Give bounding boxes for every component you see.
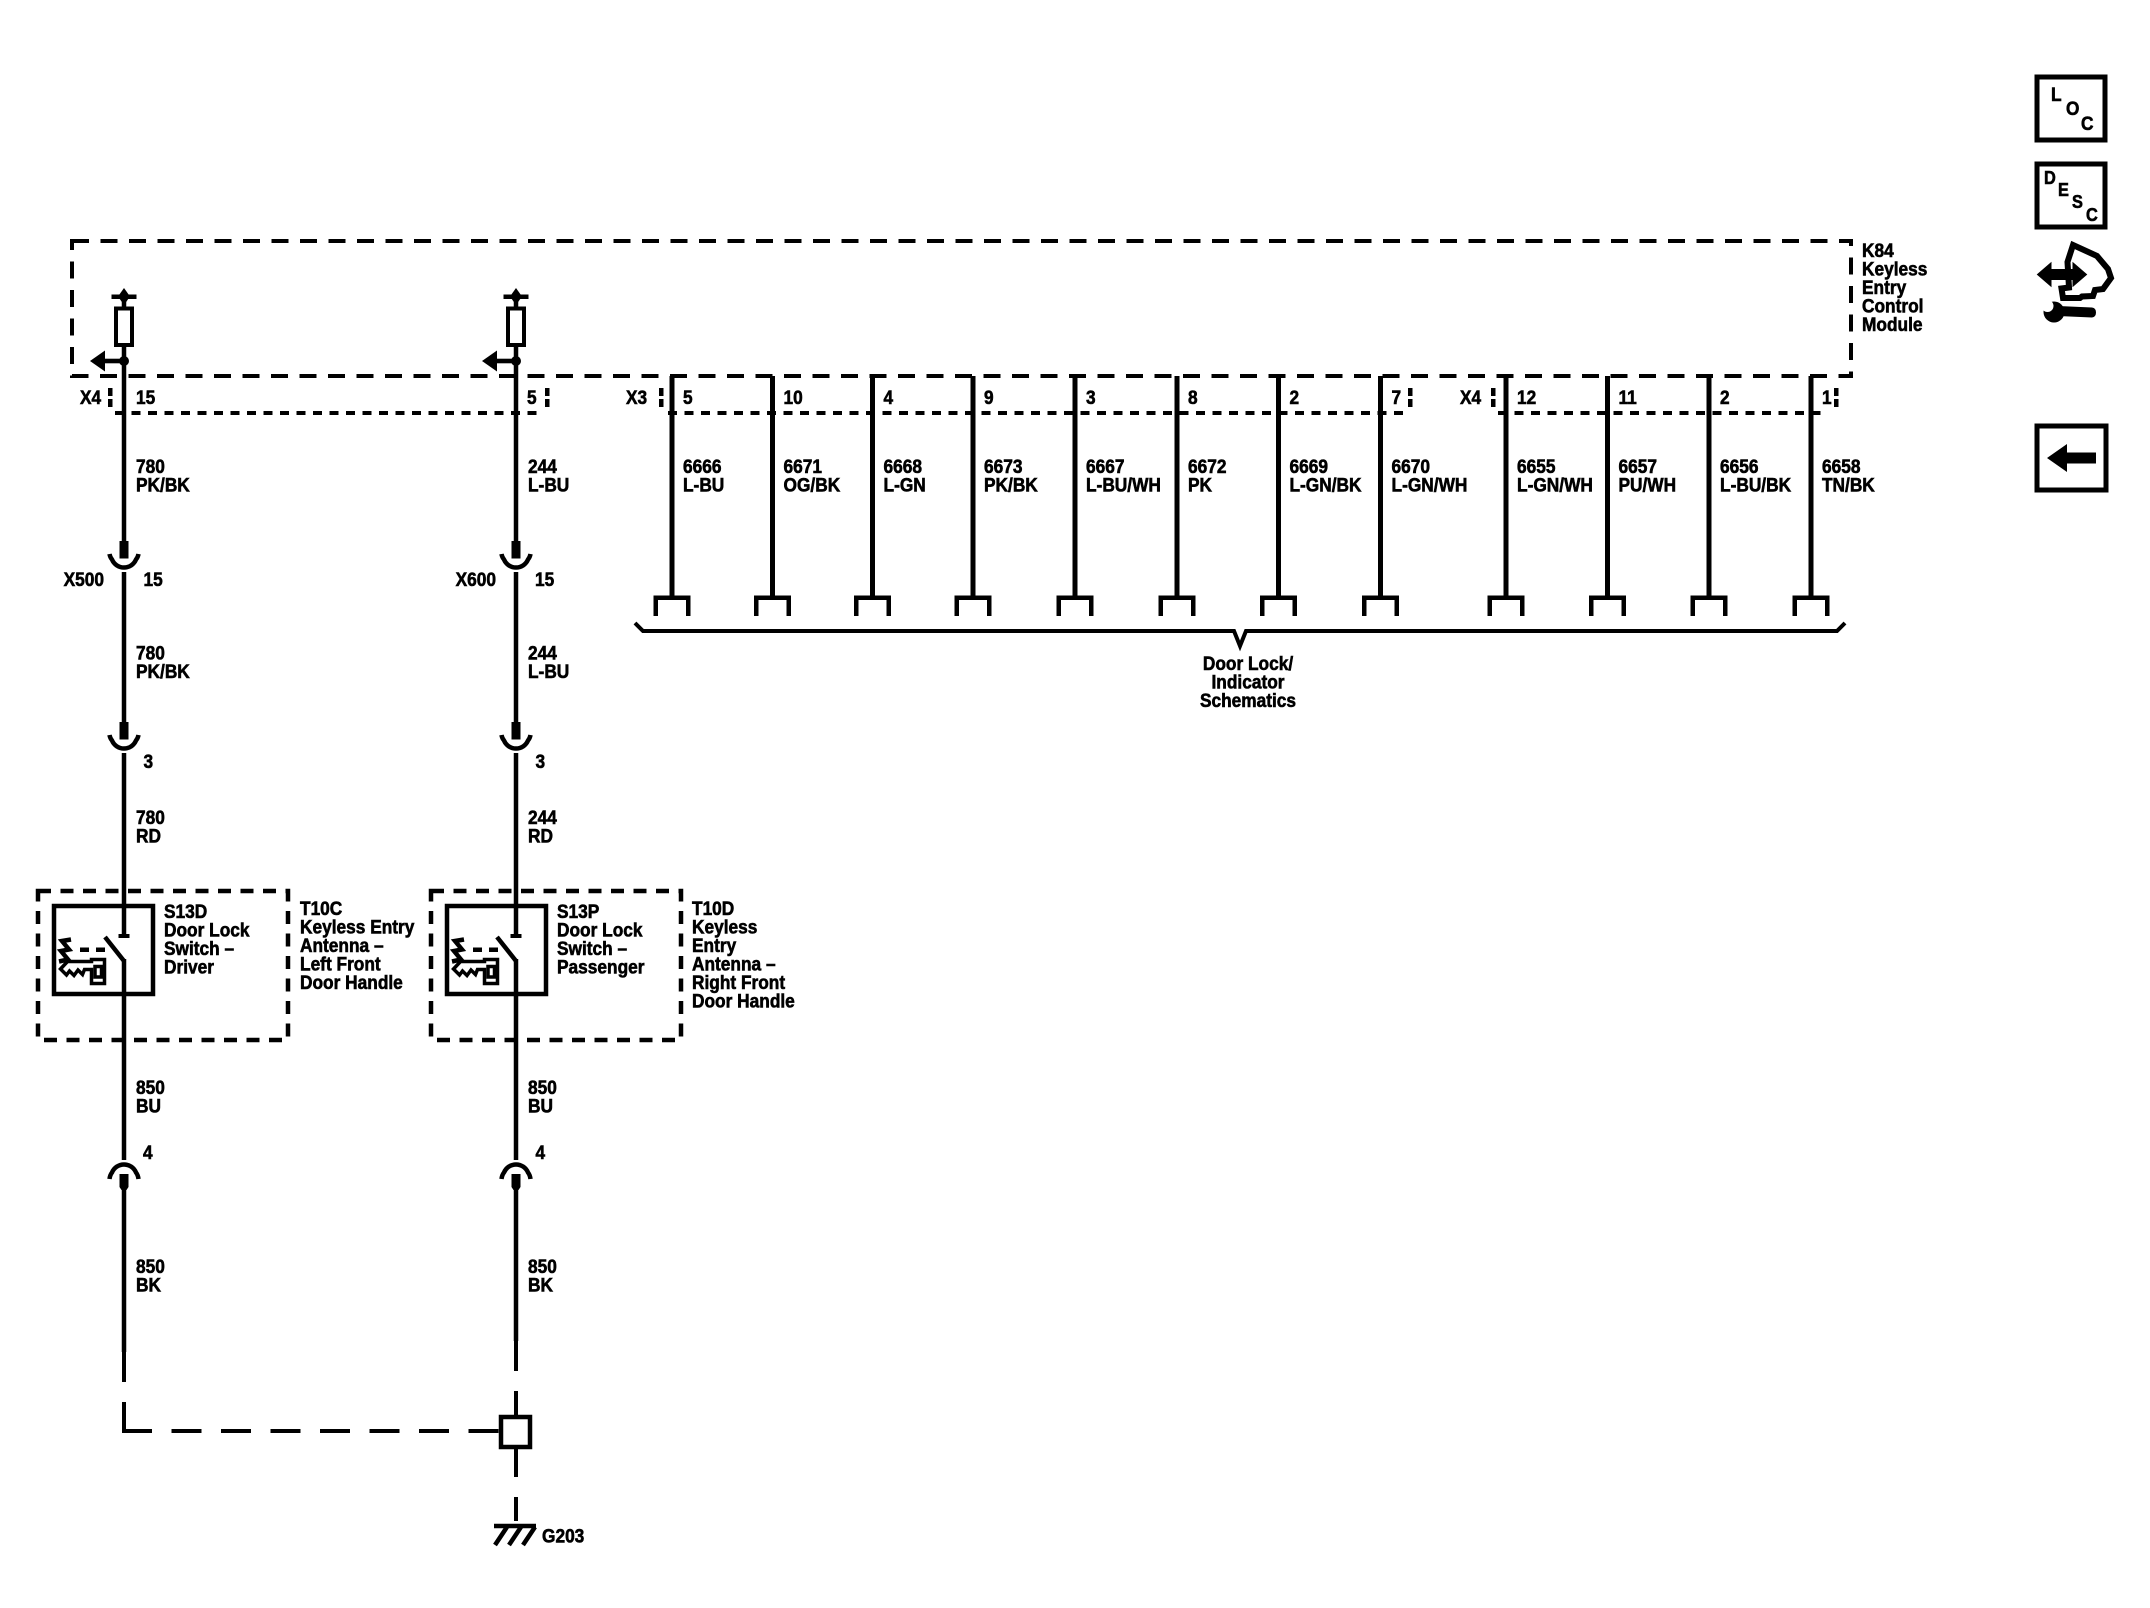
svg-text:L-BU: L-BU	[528, 662, 569, 683]
svg-text:X4: X4	[80, 388, 101, 409]
svg-text:L-BU: L-BU	[528, 476, 569, 497]
svg-text:L-BU: L-BU	[683, 476, 724, 497]
svg-text:G203: G203	[542, 1527, 584, 1548]
svg-text:X600: X600	[456, 570, 496, 591]
svg-text:L-GN/WH: L-GN/WH	[1517, 476, 1593, 497]
svg-text:TN/BK: TN/BK	[1822, 476, 1875, 497]
svg-text:4: 4	[536, 1143, 546, 1164]
svg-text:RD: RD	[528, 827, 553, 848]
svg-text:Passenger: Passenger	[557, 957, 645, 978]
svg-text:PK: PK	[1188, 476, 1212, 497]
svg-text:BU: BU	[136, 1097, 161, 1118]
svg-text:9: 9	[984, 388, 994, 409]
svg-text:X4: X4	[1460, 388, 1481, 409]
svg-text:BU: BU	[528, 1097, 553, 1118]
svg-text:RD: RD	[136, 827, 161, 848]
svg-text:PK/BK: PK/BK	[984, 476, 1038, 497]
svg-text:X3: X3	[626, 388, 647, 409]
svg-text:BK: BK	[528, 1276, 553, 1297]
svg-text:L-GN: L-GN	[884, 476, 926, 497]
svg-text:D: D	[2044, 168, 2056, 188]
svg-text:7: 7	[1392, 388, 1402, 409]
svg-text:15: 15	[144, 570, 164, 591]
svg-text:Door Handle: Door Handle	[692, 991, 795, 1012]
svg-text:5: 5	[683, 388, 693, 409]
svg-text:L-BU/BK: L-BU/BK	[1720, 476, 1791, 497]
svg-text:OG/BK: OG/BK	[784, 476, 841, 497]
svg-text:C: C	[2086, 205, 2098, 225]
svg-text:S: S	[2072, 192, 2083, 212]
svg-text:1: 1	[1822, 388, 1832, 409]
svg-text:2: 2	[1290, 388, 1300, 409]
svg-text:10: 10	[784, 388, 803, 409]
svg-text:4: 4	[884, 388, 894, 409]
svg-text:2: 2	[1720, 388, 1730, 409]
svg-text:L-GN/BK: L-GN/BK	[1290, 476, 1362, 497]
svg-text:C: C	[2081, 114, 2094, 135]
svg-text:15: 15	[136, 388, 156, 409]
svg-text:3: 3	[1086, 388, 1096, 409]
svg-text:PK/BK: PK/BK	[136, 476, 190, 497]
svg-text:5: 5	[527, 388, 537, 409]
svg-text:3: 3	[536, 752, 546, 773]
svg-text:PU/WH: PU/WH	[1619, 476, 1677, 497]
svg-text:Driver: Driver	[164, 957, 215, 978]
svg-text:BK: BK	[136, 1276, 161, 1297]
svg-text:PK/BK: PK/BK	[136, 662, 190, 683]
svg-text:Door Handle: Door Handle	[300, 973, 403, 994]
svg-text:Schematics: Schematics	[1200, 691, 1296, 712]
svg-text:L: L	[2051, 85, 2062, 106]
svg-text:O: O	[2066, 99, 2079, 120]
svg-text:8: 8	[1188, 388, 1198, 409]
svg-text:12: 12	[1517, 388, 1536, 409]
svg-text:11: 11	[1619, 388, 1638, 409]
svg-text:L-GN/WH: L-GN/WH	[1392, 476, 1468, 497]
svg-text:15: 15	[535, 570, 555, 591]
svg-text:4: 4	[143, 1143, 153, 1164]
svg-text:Module: Module	[1862, 315, 1923, 336]
svg-text:L-BU/WH: L-BU/WH	[1086, 476, 1161, 497]
svg-text:X500: X500	[64, 570, 104, 591]
svg-text:3: 3	[144, 752, 154, 773]
svg-text:E: E	[2058, 180, 2069, 200]
